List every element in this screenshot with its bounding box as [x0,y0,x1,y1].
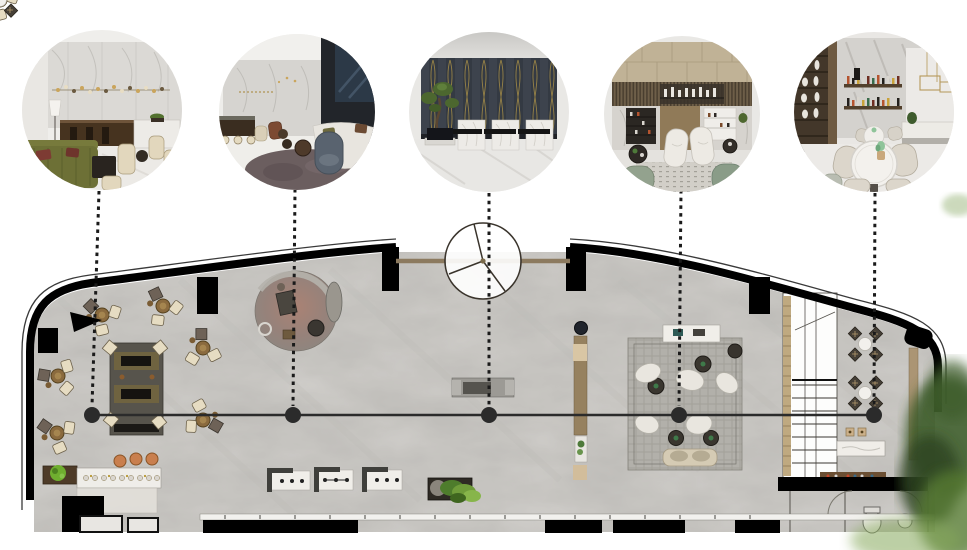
vase-shelf-unit [794,40,828,152]
reception-desks [450,120,553,150]
console-tables [267,467,402,492]
shelf-unit-left [626,108,656,144]
column [197,277,218,314]
oval-lounge-rug [255,271,337,351]
wood-partition [573,322,588,481]
square-lounge-rug [102,340,167,435]
green-chair-left [622,166,654,193]
column [566,247,586,291]
floor-plan-presentation-svg [0,0,967,550]
green-sofa [22,140,98,188]
column [382,247,399,291]
column [749,277,770,314]
presentation-canvas [0,0,967,550]
coffee-table [92,156,116,178]
staircase [783,293,837,479]
bottle-display [660,84,724,104]
bar-left [217,116,255,144]
callout-photo-5-cafe-bar [794,32,954,193]
callout-photo-4-bar-lounge [602,34,762,194]
section-node-3 [481,407,497,423]
section-node-1 [84,407,100,423]
entry-console [452,378,514,397]
section-node-4 [671,407,687,423]
section-node-2 [285,407,301,423]
callout-photo-1-lobby-bar [22,30,182,190]
wingback-chair [315,132,343,174]
green-chair-right [712,164,744,192]
side-table-left [629,145,647,163]
callout-photo-2-lounge-seating [217,32,377,192]
side-table [295,140,311,156]
callout-photo-3-reception [409,32,569,192]
lounge-area-rug [628,325,742,470]
section-node-5 [866,407,882,423]
